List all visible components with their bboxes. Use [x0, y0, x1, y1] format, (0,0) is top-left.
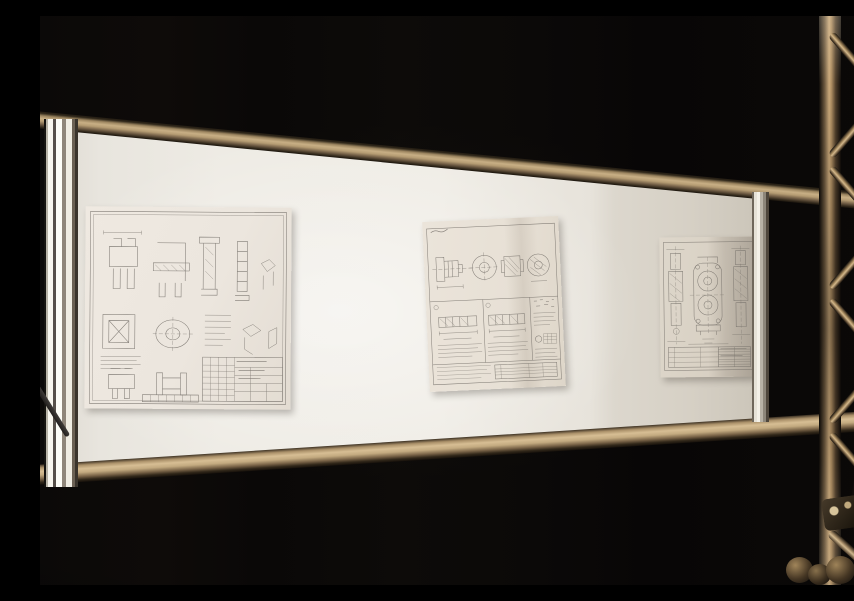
photo-scene — [40, 16, 854, 585]
blueprint-sheet-3 — [659, 236, 759, 377]
drawing-1-lineart — [84, 206, 291, 409]
board-right-edge-cap — [752, 192, 769, 422]
truss-coupler-clamp — [821, 495, 854, 532]
blueprint-sheet-1 — [84, 206, 291, 409]
clamp-knob — [826, 556, 854, 584]
board-left-post — [44, 119, 78, 487]
drawing-3-lineart — [659, 236, 759, 377]
drawing-2-lineart — [422, 216, 566, 392]
blueprint-sheet-2 — [422, 216, 566, 392]
